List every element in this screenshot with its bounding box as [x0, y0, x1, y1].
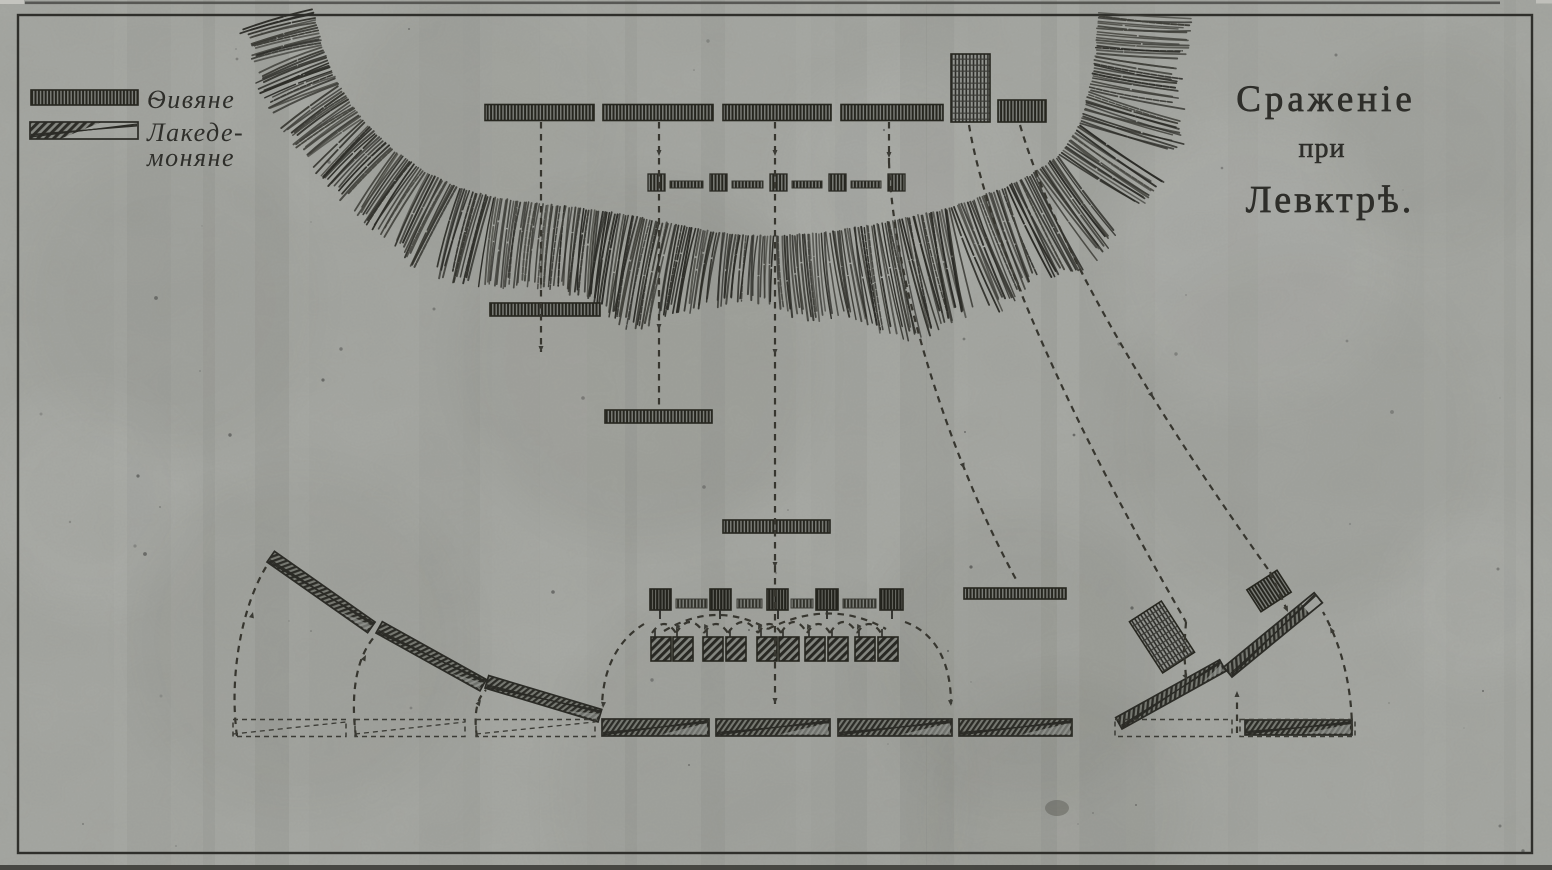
- svg-text:Ѳивяне: Ѳивяне: [147, 85, 235, 114]
- svg-text:Левктрѣ.: Левктрѣ.: [1246, 179, 1415, 221]
- svg-text:Сраженіе: Сраженіе: [1236, 79, 1416, 120]
- svg-text:моняне: моняне: [146, 143, 235, 172]
- svg-text:при: при: [1299, 133, 1346, 164]
